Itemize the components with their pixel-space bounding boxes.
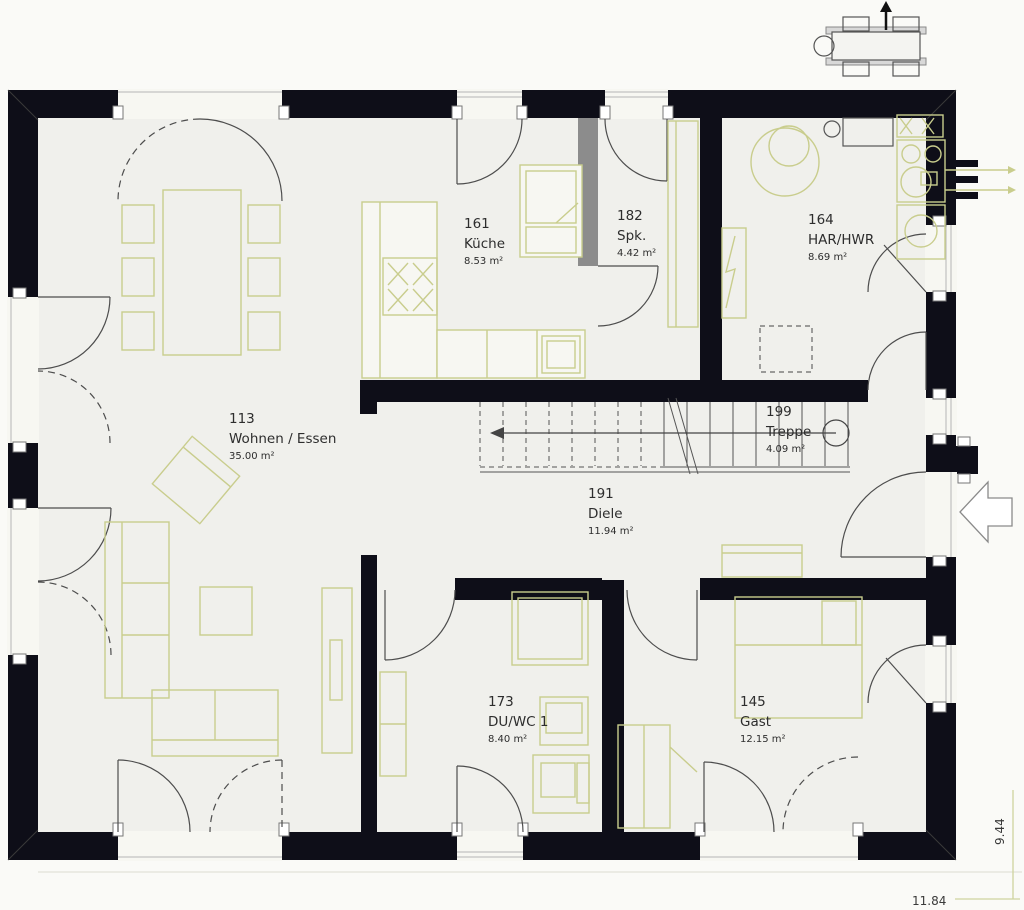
svg-text:8.40 m²: 8.40 m² — [488, 734, 527, 745]
dimension-height: 9.44 — [993, 818, 1007, 845]
svg-text:Küche: Küche — [464, 236, 505, 252]
svg-text:Treppe: Treppe — [765, 424, 811, 440]
car-icon — [814, 1, 926, 76]
svg-text:8.69 m²: 8.69 m² — [808, 252, 847, 263]
floorplan-page: 11.84 9.44 113 Wohnen / Essen 35.00 m² 1… — [0, 0, 1024, 910]
svg-text:173: 173 — [488, 694, 514, 710]
svg-text:4.42 m²: 4.42 m² — [617, 248, 656, 259]
svg-text:161: 161 — [464, 216, 490, 232]
floorplan-drawing: 11.84 9.44 113 Wohnen / Essen 35.00 m² 1… — [0, 0, 1024, 910]
svg-text:113: 113 — [229, 411, 255, 427]
svg-text:164: 164 — [808, 212, 834, 228]
entrance-arrow-icon — [960, 482, 1012, 542]
dimension-width: 11.84 — [912, 894, 946, 908]
svg-text:182: 182 — [617, 208, 643, 224]
svg-text:145: 145 — [740, 694, 766, 710]
kitchen-counter-bottom — [437, 330, 585, 378]
svg-text:DU/WC 1: DU/WC 1 — [488, 714, 548, 730]
kitchen-counter-left — [362, 202, 437, 378]
svg-text:HAR/HWR: HAR/HWR — [808, 232, 874, 248]
svg-text:Gast: Gast — [740, 714, 771, 730]
fridge-unit — [520, 165, 582, 257]
svg-text:Diele: Diele — [588, 506, 623, 522]
svg-text:Wohnen / Essen: Wohnen / Essen — [229, 431, 336, 447]
svg-text:12.15 m²: 12.15 m² — [740, 734, 786, 745]
svg-text:35.00 m²: 35.00 m² — [229, 451, 275, 462]
entrance-pier — [956, 446, 978, 474]
svg-text:4.09 m²: 4.09 m² — [766, 444, 805, 455]
svg-text:Spk.: Spk. — [617, 228, 646, 244]
svg-text:191: 191 — [588, 486, 614, 502]
svg-text:199: 199 — [766, 404, 792, 420]
svg-text:8.53 m²: 8.53 m² — [464, 256, 503, 267]
svg-text:11.94 m²: 11.94 m² — [588, 526, 634, 537]
